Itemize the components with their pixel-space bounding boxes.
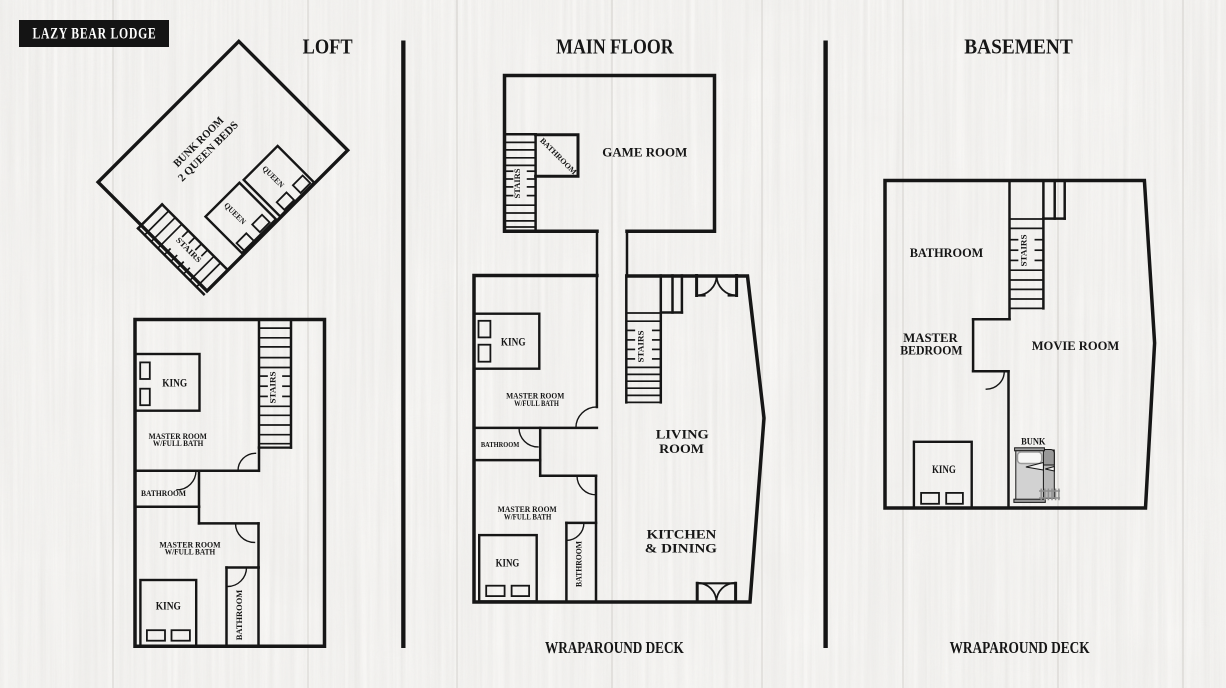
svg-text:BATHROOM: BATHROOM xyxy=(481,440,520,449)
svg-text:MOVIE ROOM: MOVIE ROOM xyxy=(1032,338,1120,353)
svg-text:STAIRS: STAIRS xyxy=(636,330,646,362)
svg-text:STAIRS: STAIRS xyxy=(512,168,522,198)
svg-text:KING: KING xyxy=(162,378,187,390)
svg-text:W/FULL BATH: W/FULL BATH xyxy=(165,547,216,557)
svg-text:BATHROOM: BATHROOM xyxy=(538,136,579,177)
svg-text:BATHROOM: BATHROOM xyxy=(575,541,584,587)
svg-text:W/FULL BATH: W/FULL BATH xyxy=(514,398,559,408)
svg-text:GAME ROOM: GAME ROOM xyxy=(602,144,687,159)
svg-text:LOFT: LOFT xyxy=(303,35,354,59)
svg-text:W/FULL BATH: W/FULL BATH xyxy=(153,438,204,448)
svg-text:KING: KING xyxy=(496,558,520,570)
svg-text:ROOM: ROOM xyxy=(659,441,704,456)
svg-text:BASEMENT: BASEMENT xyxy=(964,34,1073,58)
svg-text:KING: KING xyxy=(501,337,526,349)
svg-text:BEDROOM: BEDROOM xyxy=(900,343,962,358)
svg-text:BATHROOM: BATHROOM xyxy=(910,245,984,260)
svg-text:STAIRS: STAIRS xyxy=(268,371,278,403)
svg-text:KING: KING xyxy=(156,601,181,613)
svg-text:& DINING: & DINING xyxy=(645,541,717,556)
svg-text:BATHROOM: BATHROOM xyxy=(235,589,244,640)
svg-text:QUEEN: QUEEN xyxy=(260,164,286,190)
svg-text:WRAPAROUND DECK: WRAPAROUND DECK xyxy=(545,638,684,657)
svg-text:W/FULL BATH: W/FULL BATH xyxy=(504,512,552,522)
svg-text:STAIRS: STAIRS xyxy=(1019,234,1029,266)
svg-text:BUNK: BUNK xyxy=(1021,438,1046,448)
svg-text:MAIN FLOOR: MAIN FLOOR xyxy=(556,34,674,58)
svg-text:LAZY BEAR LODGE: LAZY BEAR LODGE xyxy=(33,26,157,43)
svg-text:WRAPAROUND DECK: WRAPAROUND DECK xyxy=(950,638,1090,657)
svg-text:QUEEN: QUEEN xyxy=(222,201,248,227)
svg-text:LIVING: LIVING xyxy=(656,427,709,442)
svg-text:KITCHEN: KITCHEN xyxy=(647,527,717,542)
svg-text:KING: KING xyxy=(932,464,956,476)
